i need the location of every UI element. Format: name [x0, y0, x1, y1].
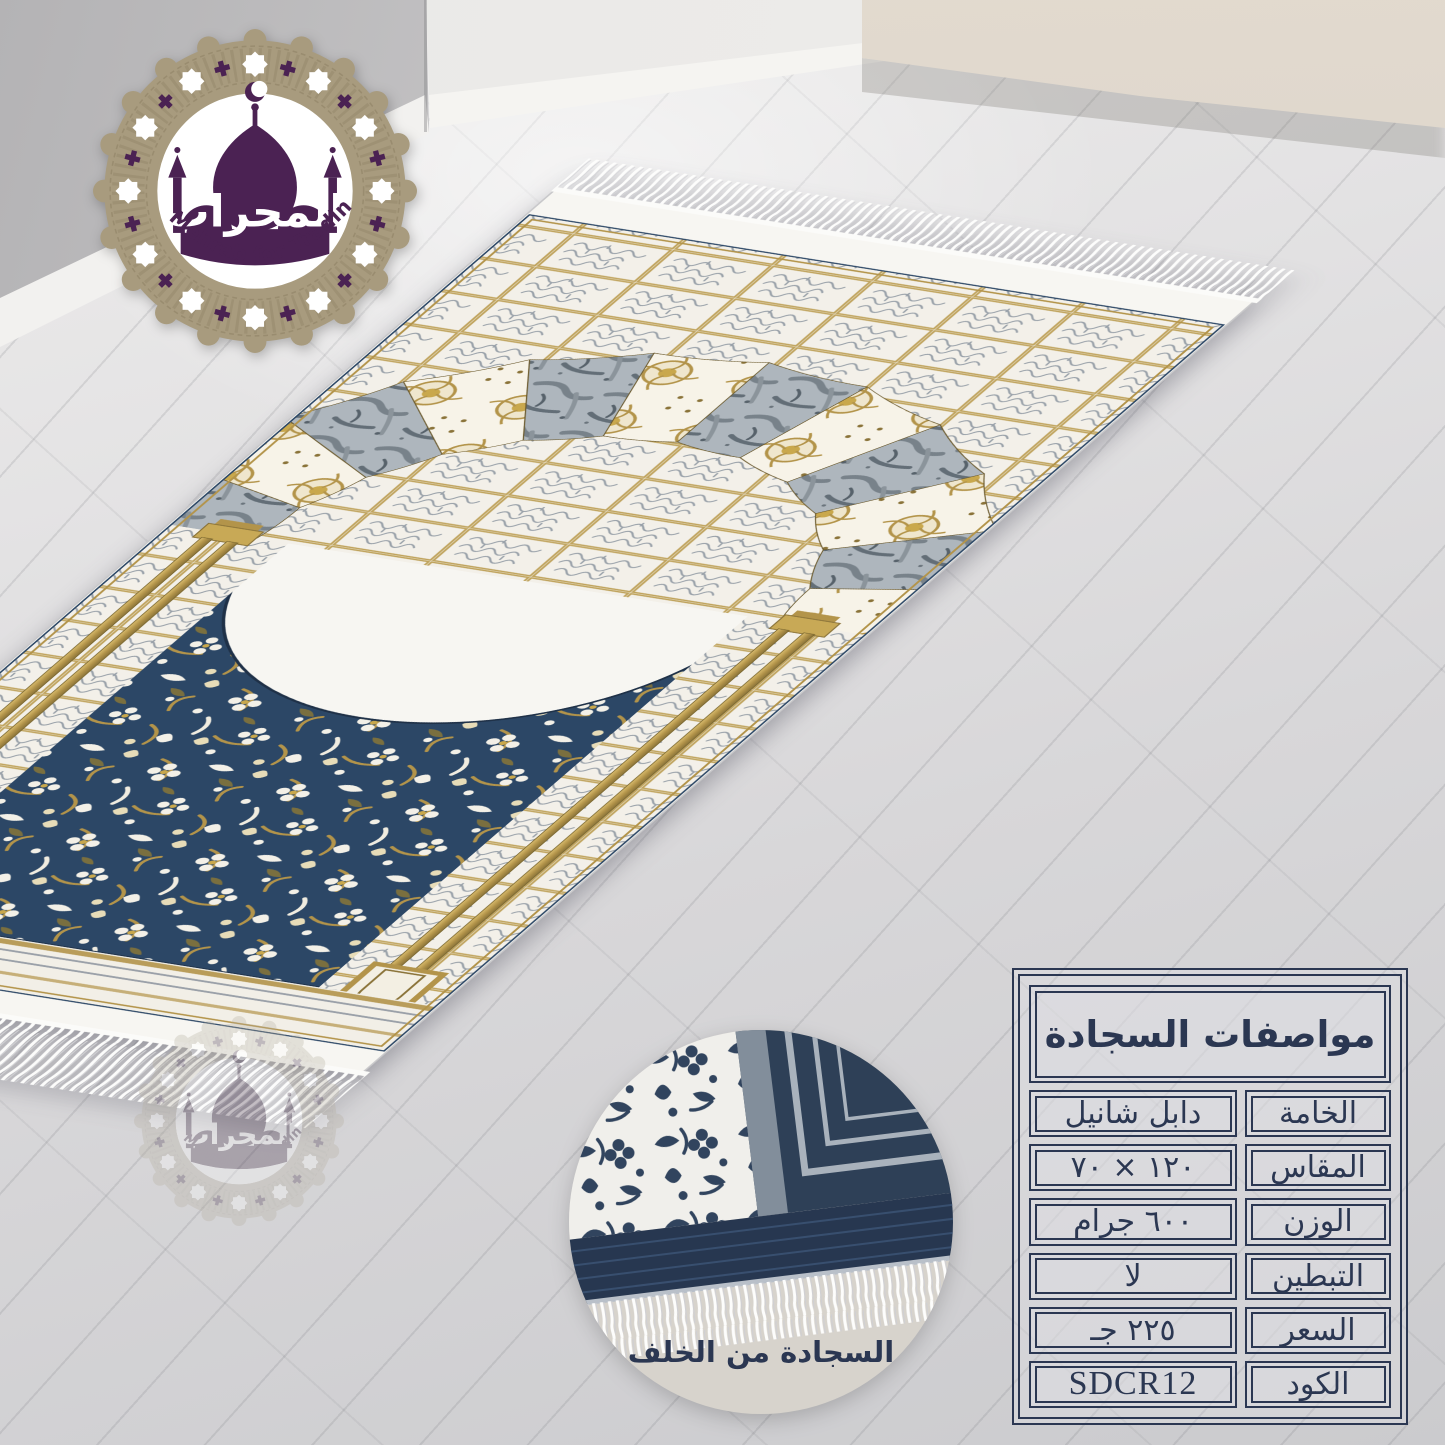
spec-label-cell: الكود: [1245, 1361, 1391, 1408]
spec-label: الخامة: [1279, 1096, 1357, 1131]
spec-title-box: مواصفات السجادة: [1029, 985, 1391, 1083]
spec-value: لا: [1124, 1259, 1141, 1294]
spec-label: الكود: [1287, 1367, 1350, 1402]
inset-caption: السجادة من الخلف: [628, 1335, 894, 1369]
spec-table-inner: مواصفات السجادة الخامة دابل شانيل المقاس…: [1018, 974, 1402, 1419]
spec-row: الكود SDCR12: [1029, 1361, 1391, 1408]
spec-label-cell: الوزن: [1245, 1198, 1391, 1245]
spec-label-cell: المقاس: [1245, 1144, 1391, 1191]
product-photo-scene: المحراب Al Mehrab for Trading: [0, 0, 1445, 1445]
spec-value-cell: دابل شانيل: [1029, 1090, 1237, 1137]
spec-value: دابل شانيل: [1065, 1096, 1202, 1131]
spec-value-cell: لا: [1029, 1253, 1237, 1300]
spec-label-cell: التبطين: [1245, 1253, 1391, 1300]
spec-label: التبطين: [1272, 1259, 1364, 1294]
spec-row: التبطين لا: [1029, 1253, 1391, 1300]
spec-value-cell: ١٢٠ × ٧٠: [1029, 1144, 1237, 1191]
spec-value-cell: ٦٠٠ جرام: [1029, 1198, 1237, 1245]
spec-label: الوزن: [1283, 1204, 1353, 1239]
spec-row: الوزن ٦٠٠ جرام: [1029, 1198, 1391, 1245]
spec-value: ٢٢٥ جـ: [1090, 1313, 1175, 1348]
spec-title: مواصفات السجادة: [1045, 1013, 1376, 1056]
spec-label-cell: الخامة: [1245, 1090, 1391, 1137]
spec-label: السعر: [1280, 1313, 1355, 1348]
spec-value-cell: ٢٢٥ جـ: [1029, 1307, 1237, 1354]
rug-back-photo: [569, 1030, 953, 1371]
spec-value-cell: SDCR12: [1029, 1361, 1237, 1408]
spec-row: الخامة دابل شانيل: [1029, 1090, 1391, 1137]
spec-value: ٦٠٠ جرام: [1073, 1204, 1193, 1239]
spec-label-cell: السعر: [1245, 1307, 1391, 1354]
wall-corner-line: [424, 0, 427, 132]
spec-table: مواصفات السجادة الخامة دابل شانيل المقاس…: [1012, 968, 1408, 1425]
back-view-inset: السجادة من الخلف: [569, 1030, 953, 1414]
watermark-logo: [134, 1016, 344, 1226]
spec-value: ١٢٠ × ٧٠: [1071, 1150, 1196, 1185]
spec-code-value: SDCR12: [1069, 1365, 1198, 1403]
spec-row: المقاس ١٢٠ × ٧٠: [1029, 1144, 1391, 1191]
brand-logo: المحراب Al Mehrab for Trading: [93, 29, 417, 353]
spec-label: المقاس: [1270, 1150, 1366, 1185]
spec-row: السعر ٢٢٥ جـ: [1029, 1307, 1391, 1354]
